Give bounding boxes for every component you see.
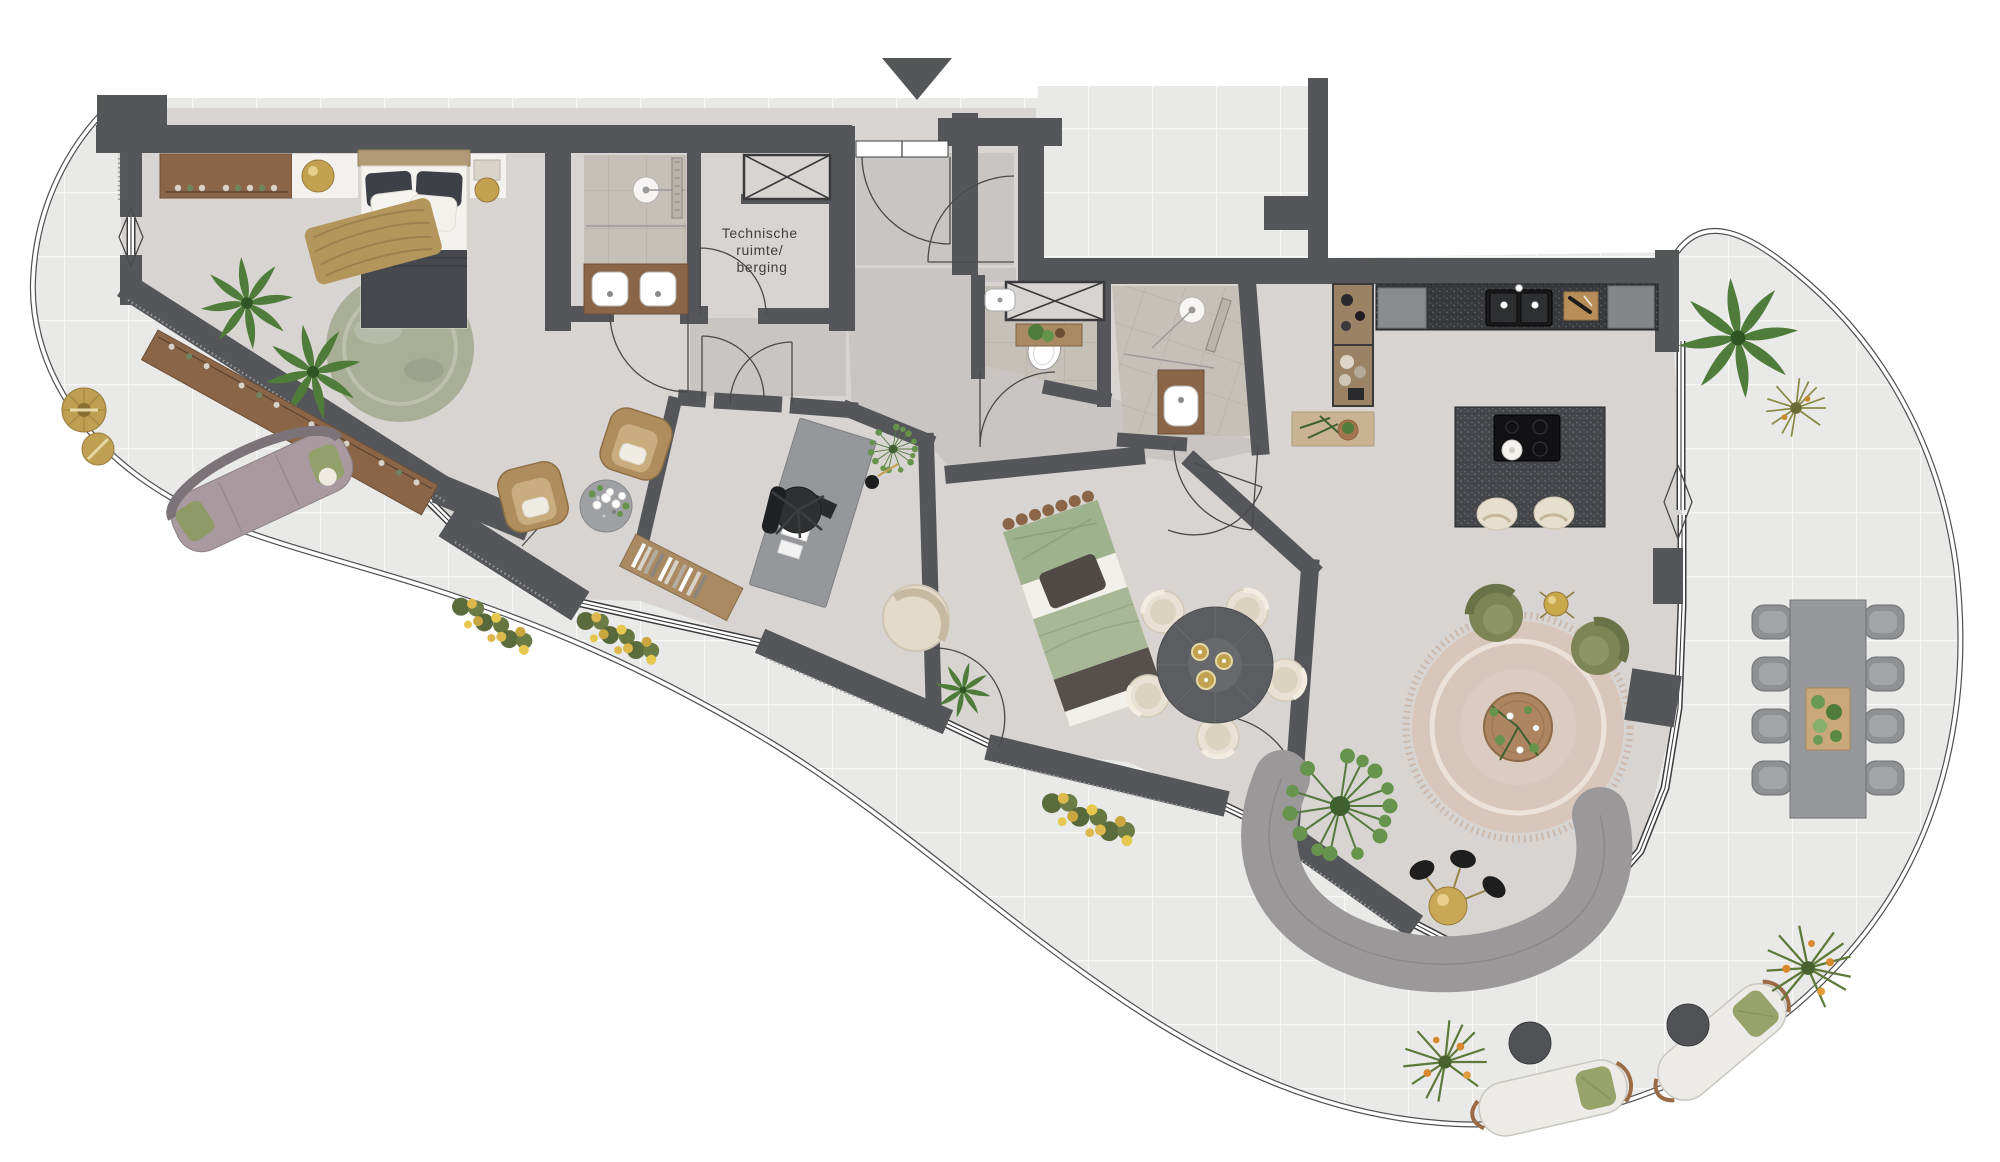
appliance	[1378, 288, 1426, 328]
gold-lamp-icon	[302, 160, 334, 192]
lounge-chair	[883, 585, 949, 651]
vase-icon	[865, 475, 879, 489]
gold-coffee-table	[62, 388, 106, 432]
floor-plan-page: Technische ruimte/ berging	[0, 0, 2000, 1162]
coffee-table	[1484, 693, 1552, 761]
pantry-shelf	[1333, 284, 1373, 406]
floor-plan-canvas: Technische ruimte/ berging	[0, 0, 2000, 1162]
sink-icon	[1164, 386, 1198, 426]
round-dining-table	[1157, 607, 1273, 723]
planter-bench	[1292, 412, 1374, 446]
cutting-board	[1564, 292, 1598, 320]
shower-drain	[672, 158, 682, 218]
outdoor-side-table	[1667, 1004, 1709, 1046]
flower-side-table	[580, 480, 632, 532]
outdoor-dining-set	[1752, 600, 1904, 818]
console-plant	[1016, 324, 1082, 346]
kitchen-island	[1455, 407, 1605, 530]
sink-icon	[640, 272, 676, 306]
gold-side-table	[82, 433, 114, 465]
gold-lamp-icon	[475, 178, 499, 202]
appliance	[1608, 286, 1654, 328]
succulent-tray	[1806, 688, 1850, 750]
entrance-arrow-icon	[882, 58, 952, 100]
vanity-tray	[474, 160, 500, 180]
stool-icon	[1534, 497, 1574, 529]
outdoor-side-table	[1509, 1022, 1551, 1064]
double-sink-icon	[1486, 285, 1552, 327]
sink-icon	[592, 272, 628, 306]
wardrobe	[160, 154, 292, 198]
